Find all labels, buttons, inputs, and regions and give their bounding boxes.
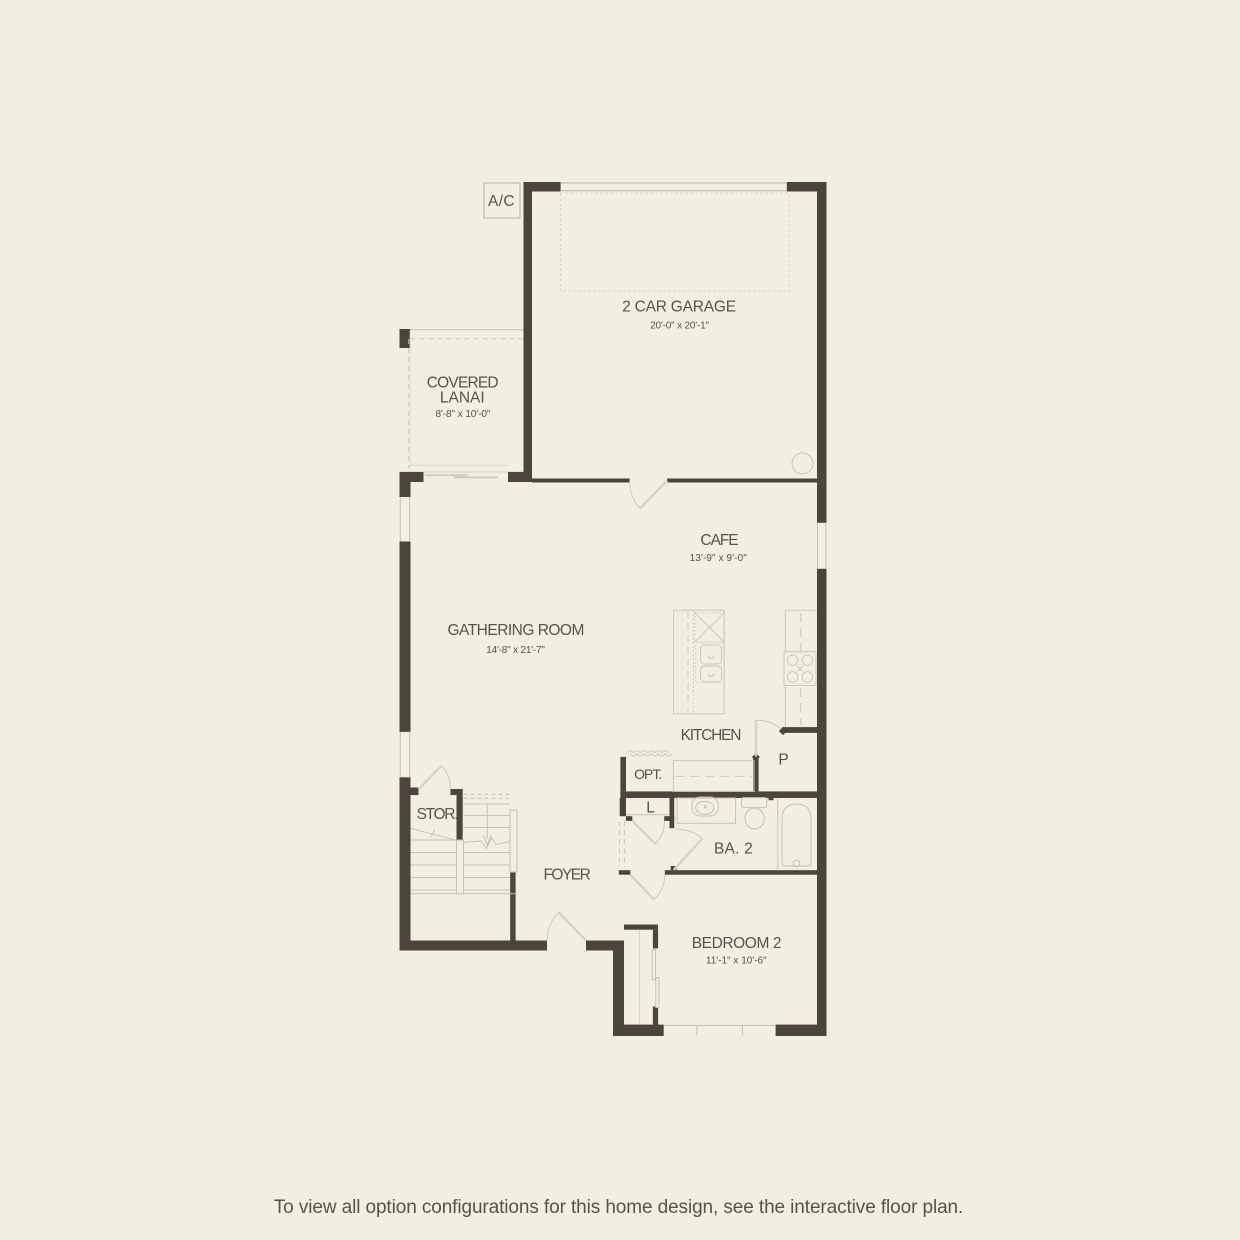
svg-text:13'-9" x 9'-0": 13'-9" x 9'-0" (690, 553, 748, 564)
svg-text:STOR.: STOR. (417, 806, 458, 823)
svg-text:20'-0" x 20'-1": 20'-0" x 20'-1" (650, 321, 709, 332)
svg-text:CAFE: CAFE (700, 532, 738, 549)
svg-text:OPT.: OPT. (634, 766, 661, 782)
svg-text:BEDROOM 2: BEDROOM 2 (692, 935, 781, 952)
svg-text:KITCHEN: KITCHEN (681, 727, 741, 744)
svg-text:P: P (778, 752, 788, 769)
svg-text:L: L (646, 800, 655, 817)
svg-text:To view all option configurati: To view all option configurations for th… (274, 1197, 963, 1218)
svg-text:11'-1" x 10'-6": 11'-1" x 10'-6" (706, 956, 767, 967)
svg-text:BA. 2: BA. 2 (714, 840, 753, 857)
svg-text:8'-8" x 10'-0": 8'-8" x 10'-0" (435, 409, 490, 420)
svg-text:2 CAR GARAGE: 2 CAR GARAGE (622, 299, 736, 316)
svg-text:A/C: A/C (488, 193, 515, 210)
svg-text:LANAI: LANAI (440, 390, 485, 407)
svg-text:FOYER: FOYER (543, 867, 590, 884)
svg-text:14'-8" x 21'-7": 14'-8" x 21'-7" (486, 645, 545, 656)
svg-text:GATHERING ROOM: GATHERING ROOM (448, 622, 584, 639)
